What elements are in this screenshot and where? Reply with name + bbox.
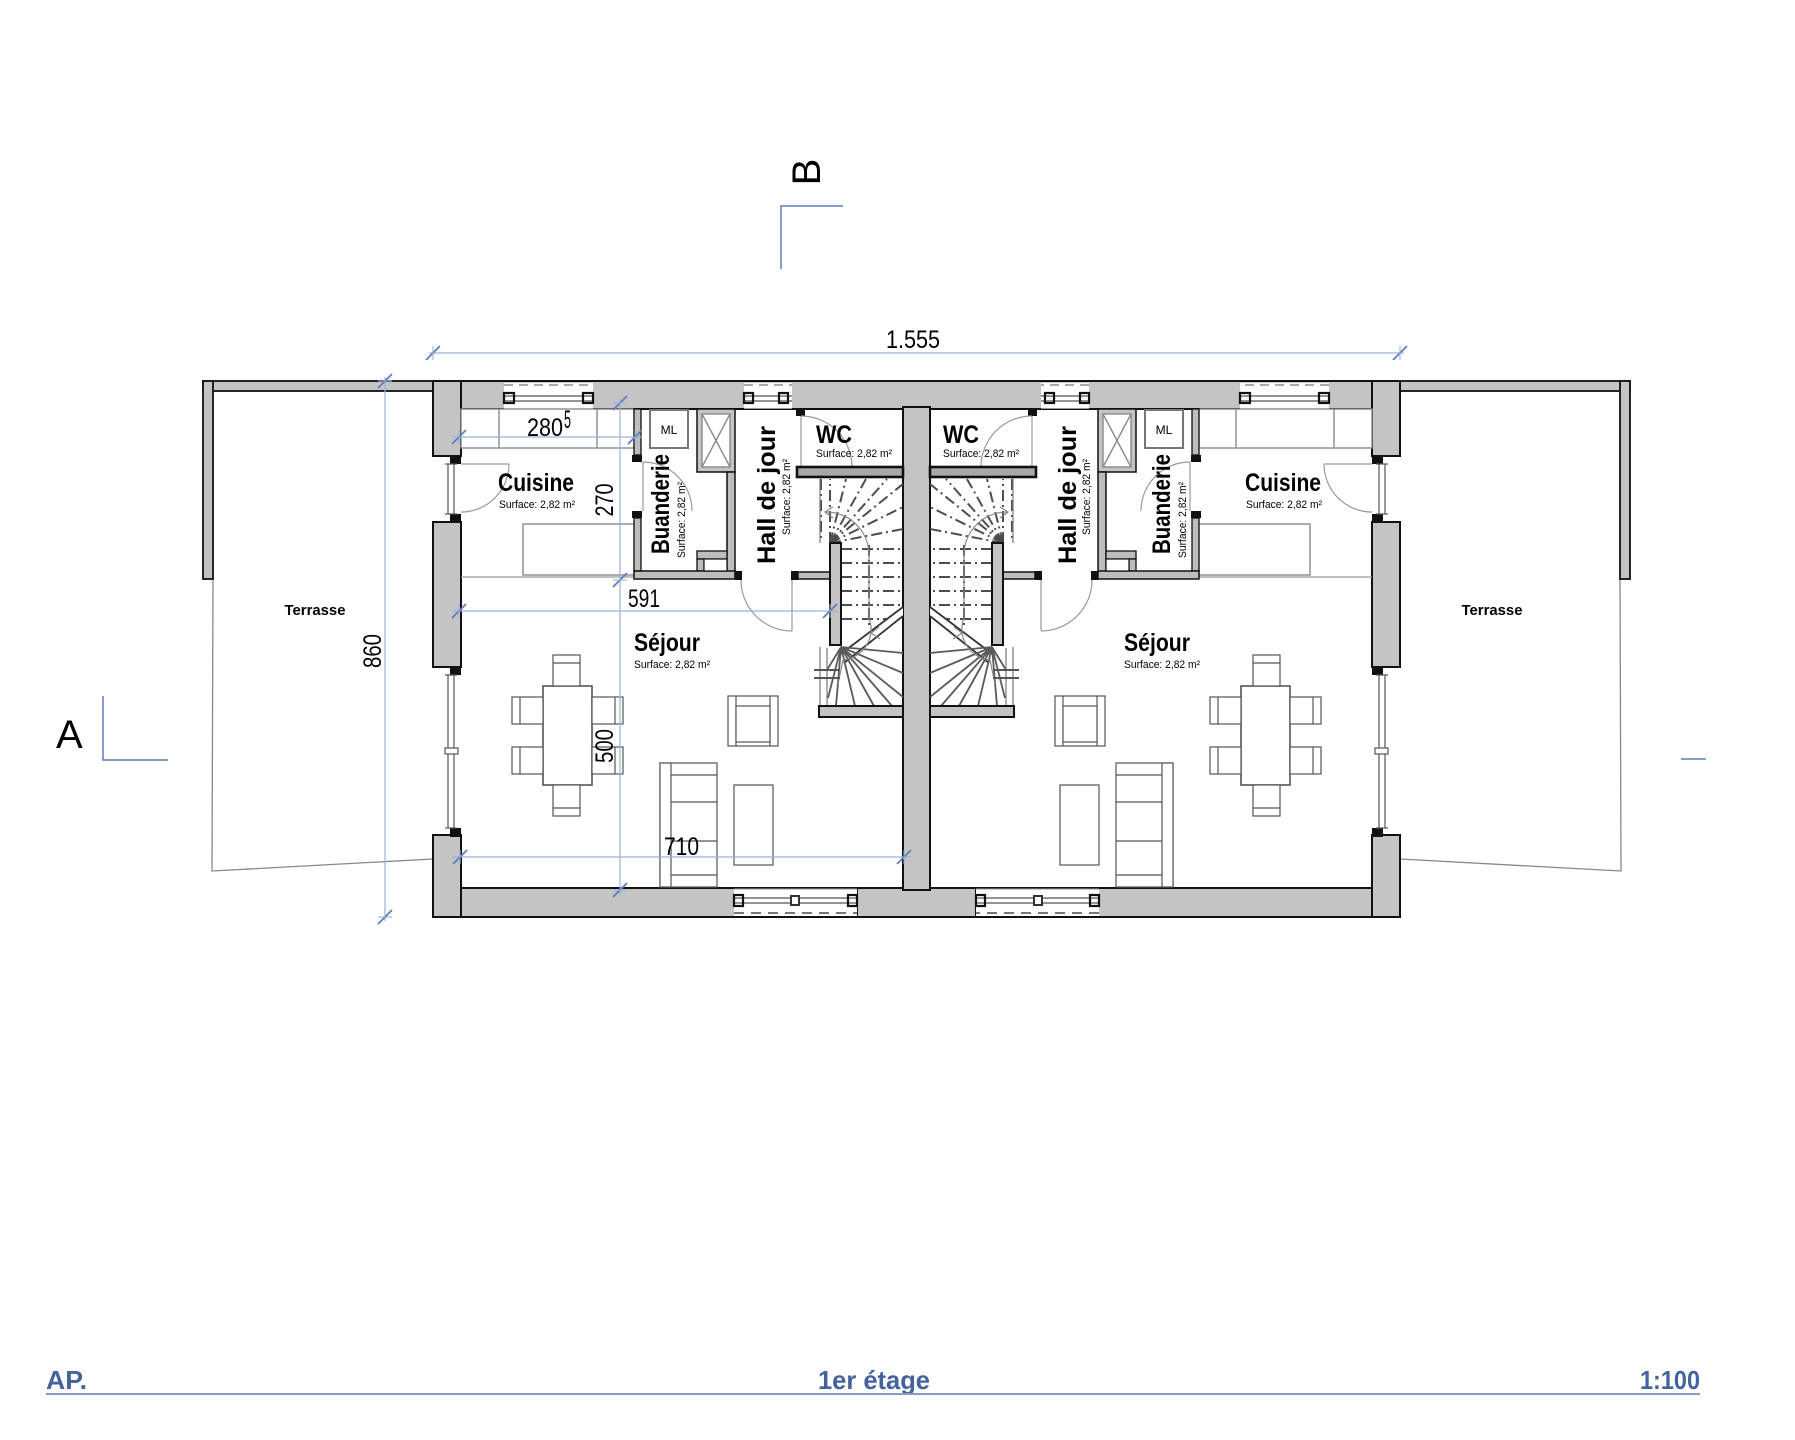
svg-text:Surface: 2,82 m²: Surface: 2,82 m² <box>1177 482 1189 558</box>
svg-text:Surface: 2,82 m²: Surface: 2,82 m² <box>943 448 1019 460</box>
svg-text:860: 860 <box>359 634 387 668</box>
svg-text:Buanderie: Buanderie <box>647 454 675 554</box>
svg-text:B: B <box>785 159 829 186</box>
svg-text:Terrasse: Terrasse <box>285 602 346 619</box>
svg-text:710: 710 <box>664 833 699 861</box>
svg-text:Surface: 2,82 m²: Surface: 2,82 m² <box>816 448 892 460</box>
svg-text:Surface: 2,82 m²: Surface: 2,82 m² <box>676 482 688 558</box>
svg-text:1:100: 1:100 <box>1640 1365 1700 1395</box>
svg-text:ML: ML <box>661 423 678 437</box>
svg-text:Surface: 2,82 m²: Surface: 2,82 m² <box>1246 499 1322 511</box>
svg-text:Surface: 2,82 m²: Surface: 2,82 m² <box>1124 659 1200 671</box>
svg-text:591: 591 <box>628 585 660 613</box>
svg-text:AP.: AP. <box>46 1365 87 1395</box>
svg-text:Surface: 2,82 m²: Surface: 2,82 m² <box>781 459 793 535</box>
svg-text:Terrasse: Terrasse <box>1462 602 1523 619</box>
svg-text:1er étage: 1er étage <box>818 1365 930 1395</box>
svg-text:Surface: 2,82 m²: Surface: 2,82 m² <box>499 499 575 511</box>
svg-text:WC: WC <box>816 421 852 449</box>
svg-text:500: 500 <box>591 729 619 763</box>
svg-text:Séjour: Séjour <box>1124 629 1190 657</box>
svg-text:Hall de jour: Hall de jour <box>1054 426 1082 564</box>
svg-text:270: 270 <box>591 484 619 517</box>
svg-text:5: 5 <box>564 406 571 434</box>
svg-text:A: A <box>56 713 83 757</box>
svg-text:Cuisine: Cuisine <box>1245 469 1321 497</box>
svg-text:ML: ML <box>1156 423 1173 437</box>
svg-text:Séjour: Séjour <box>634 629 700 657</box>
svg-text:Surface: 2,82 m²: Surface: 2,82 m² <box>634 659 710 671</box>
svg-text:Buanderie: Buanderie <box>1148 454 1176 554</box>
svg-text:Surface: 2,82 m²: Surface: 2,82 m² <box>1081 459 1093 535</box>
svg-text:1.555: 1.555 <box>886 326 940 354</box>
svg-text:WC: WC <box>943 421 979 449</box>
svg-text:Cuisine: Cuisine <box>498 469 574 497</box>
svg-text:280: 280 <box>527 414 563 442</box>
svg-text:Hall de jour: Hall de jour <box>753 426 781 564</box>
